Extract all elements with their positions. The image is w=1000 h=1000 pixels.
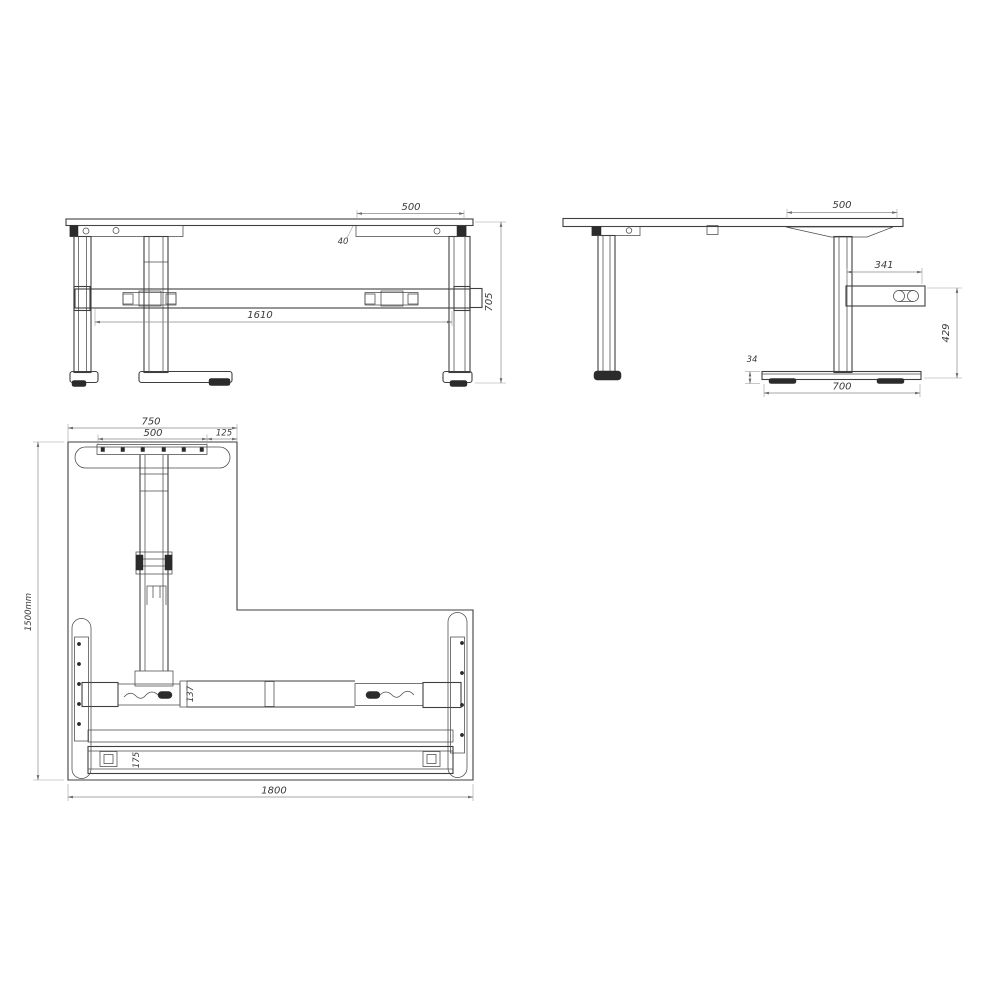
plan-right-cable xyxy=(380,691,414,697)
plan-dim-edge-offset: 125 xyxy=(207,429,237,440)
plan-left-cable xyxy=(124,692,158,698)
plan-dim-label-137: 137 xyxy=(186,685,196,702)
side-dim-control-arm: 341 xyxy=(847,260,922,284)
front-view: 500 40 1610 705 xyxy=(66,202,506,387)
plan-right-cable-connector xyxy=(366,692,380,699)
front-dim-overall-height: 705 xyxy=(475,222,506,383)
front-center-foot xyxy=(139,372,232,386)
front-right-slider xyxy=(365,291,418,306)
side-foot-pad-rear xyxy=(877,379,904,384)
side-left-bracket xyxy=(592,227,640,236)
front-crossbar-left-cap xyxy=(74,287,90,311)
plan-dim-label-1500mm: 1500mm xyxy=(24,593,34,631)
plan-top-bracket xyxy=(97,445,207,455)
plan-rear-rail-left-bracket xyxy=(100,752,117,767)
technical-drawing-canvas: 500 40 1610 705 xyxy=(0,0,1000,1000)
front-crossbar xyxy=(74,287,482,311)
plan-dim-overall-depth: 1500mm xyxy=(24,442,64,780)
plan-crossbar xyxy=(82,681,461,708)
front-left-bracket xyxy=(70,226,183,237)
plan-dim-label-125: 125 xyxy=(216,429,232,439)
front-crossbar-right-plate xyxy=(470,289,482,308)
front-left-leg xyxy=(74,237,91,373)
side-dim-label-429: 429 xyxy=(941,323,952,342)
front-dim-label-500: 500 xyxy=(401,202,420,213)
side-top-support xyxy=(786,227,893,237)
front-crossbar-right-cap xyxy=(454,287,470,311)
side-left-leg xyxy=(594,236,621,381)
front-dim-bracket-drop: 40 xyxy=(338,226,353,247)
side-desk-top xyxy=(563,219,903,227)
side-dim-foot-depth: 700 xyxy=(764,382,920,398)
side-dim-bracket-depth: 500 xyxy=(787,200,897,219)
side-dim-label-700: 700 xyxy=(832,382,851,393)
plan-dim-label-500: 500 xyxy=(143,428,162,439)
side-view: 500 341 429 34 700 xyxy=(563,200,962,397)
plan-right-cable-bay xyxy=(355,684,423,706)
side-control-box xyxy=(846,286,925,306)
plan-left-motor-box xyxy=(82,683,118,707)
front-left-foot xyxy=(70,372,98,387)
side-dim-label-341: 341 xyxy=(874,260,893,271)
plan-dim-label-750: 750 xyxy=(141,417,160,428)
plan-column-clamp xyxy=(136,552,172,574)
front-desk-top xyxy=(66,219,473,226)
side-dim-label-500: 500 xyxy=(832,200,851,211)
plan-rear-rail-right-bracket xyxy=(423,752,440,767)
side-left-foot-pad xyxy=(594,371,621,380)
front-dim-frame-width: 1610 xyxy=(95,309,452,326)
plan-left-cable-connector xyxy=(158,692,172,699)
plan-dim-label-1800: 1800 xyxy=(261,786,286,797)
plan-dim-label-175: 175 xyxy=(132,752,142,768)
side-dim-foot-height: 34 xyxy=(745,355,760,384)
plan-desktop-outline xyxy=(68,442,473,780)
plan-view: 750 500 125 1500mm 137 175 1800 xyxy=(24,417,473,802)
side-control-toggle-left xyxy=(894,291,905,302)
plan-return-column xyxy=(135,455,173,686)
side-foot-pad-front xyxy=(769,379,796,384)
plan-rear-thin-bar xyxy=(88,730,453,742)
plan-rear-rail xyxy=(88,747,453,774)
plan-right-motor-box xyxy=(423,683,461,708)
front-dim-label-40: 40 xyxy=(338,237,349,247)
side-control-toggle-right xyxy=(908,291,919,302)
front-right-foot xyxy=(443,372,472,387)
front-dim-bracket-width: 500 xyxy=(357,202,464,219)
plan-crossbar-joint xyxy=(265,682,274,707)
plan-right-rail xyxy=(448,613,467,778)
front-dim-label-1610: 1610 xyxy=(247,310,272,321)
plan-dim-overall-width: 1800 xyxy=(68,784,473,801)
front-center-column xyxy=(144,237,168,373)
side-dim-column-height: 429 xyxy=(924,288,962,378)
front-right-leg xyxy=(449,237,470,373)
front-right-bracket xyxy=(356,226,466,237)
front-dim-label-705: 705 xyxy=(484,292,495,311)
side-right-leg xyxy=(834,237,852,373)
side-dim-label-34: 34 xyxy=(747,355,758,365)
